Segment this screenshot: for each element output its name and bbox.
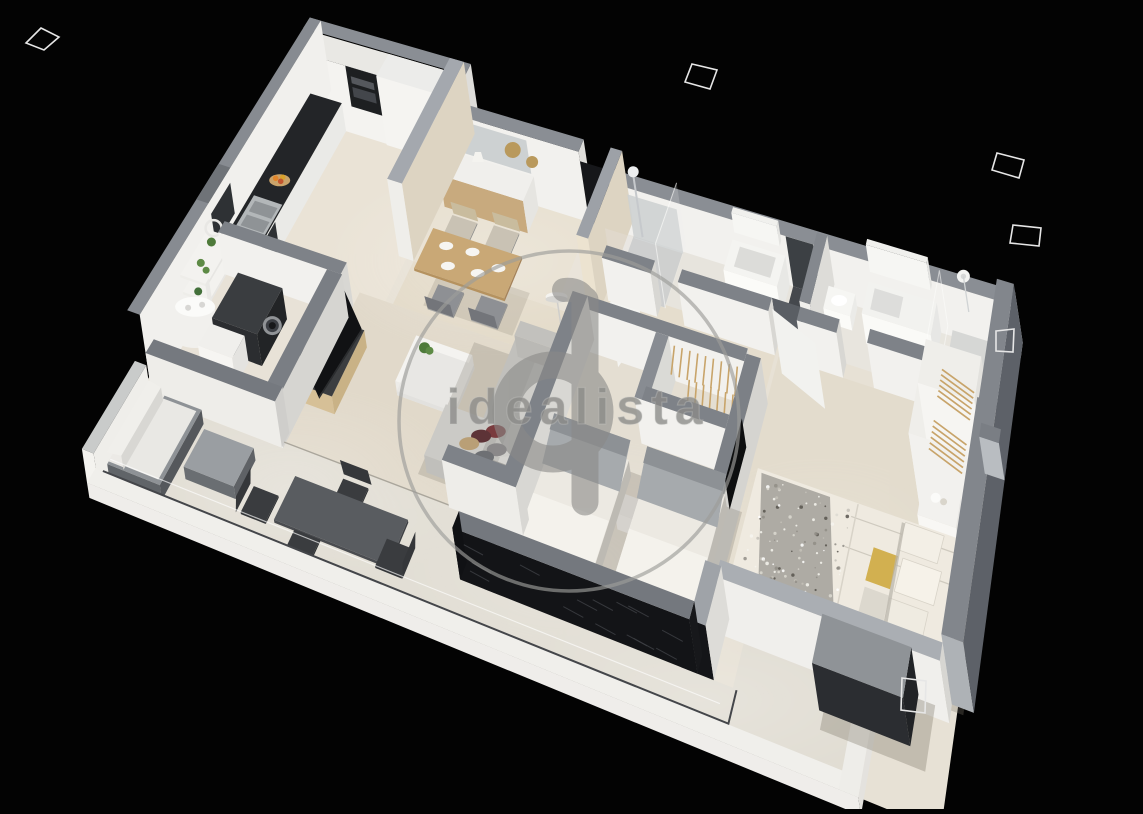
svg-text:idealista: idealista bbox=[446, 379, 709, 435]
